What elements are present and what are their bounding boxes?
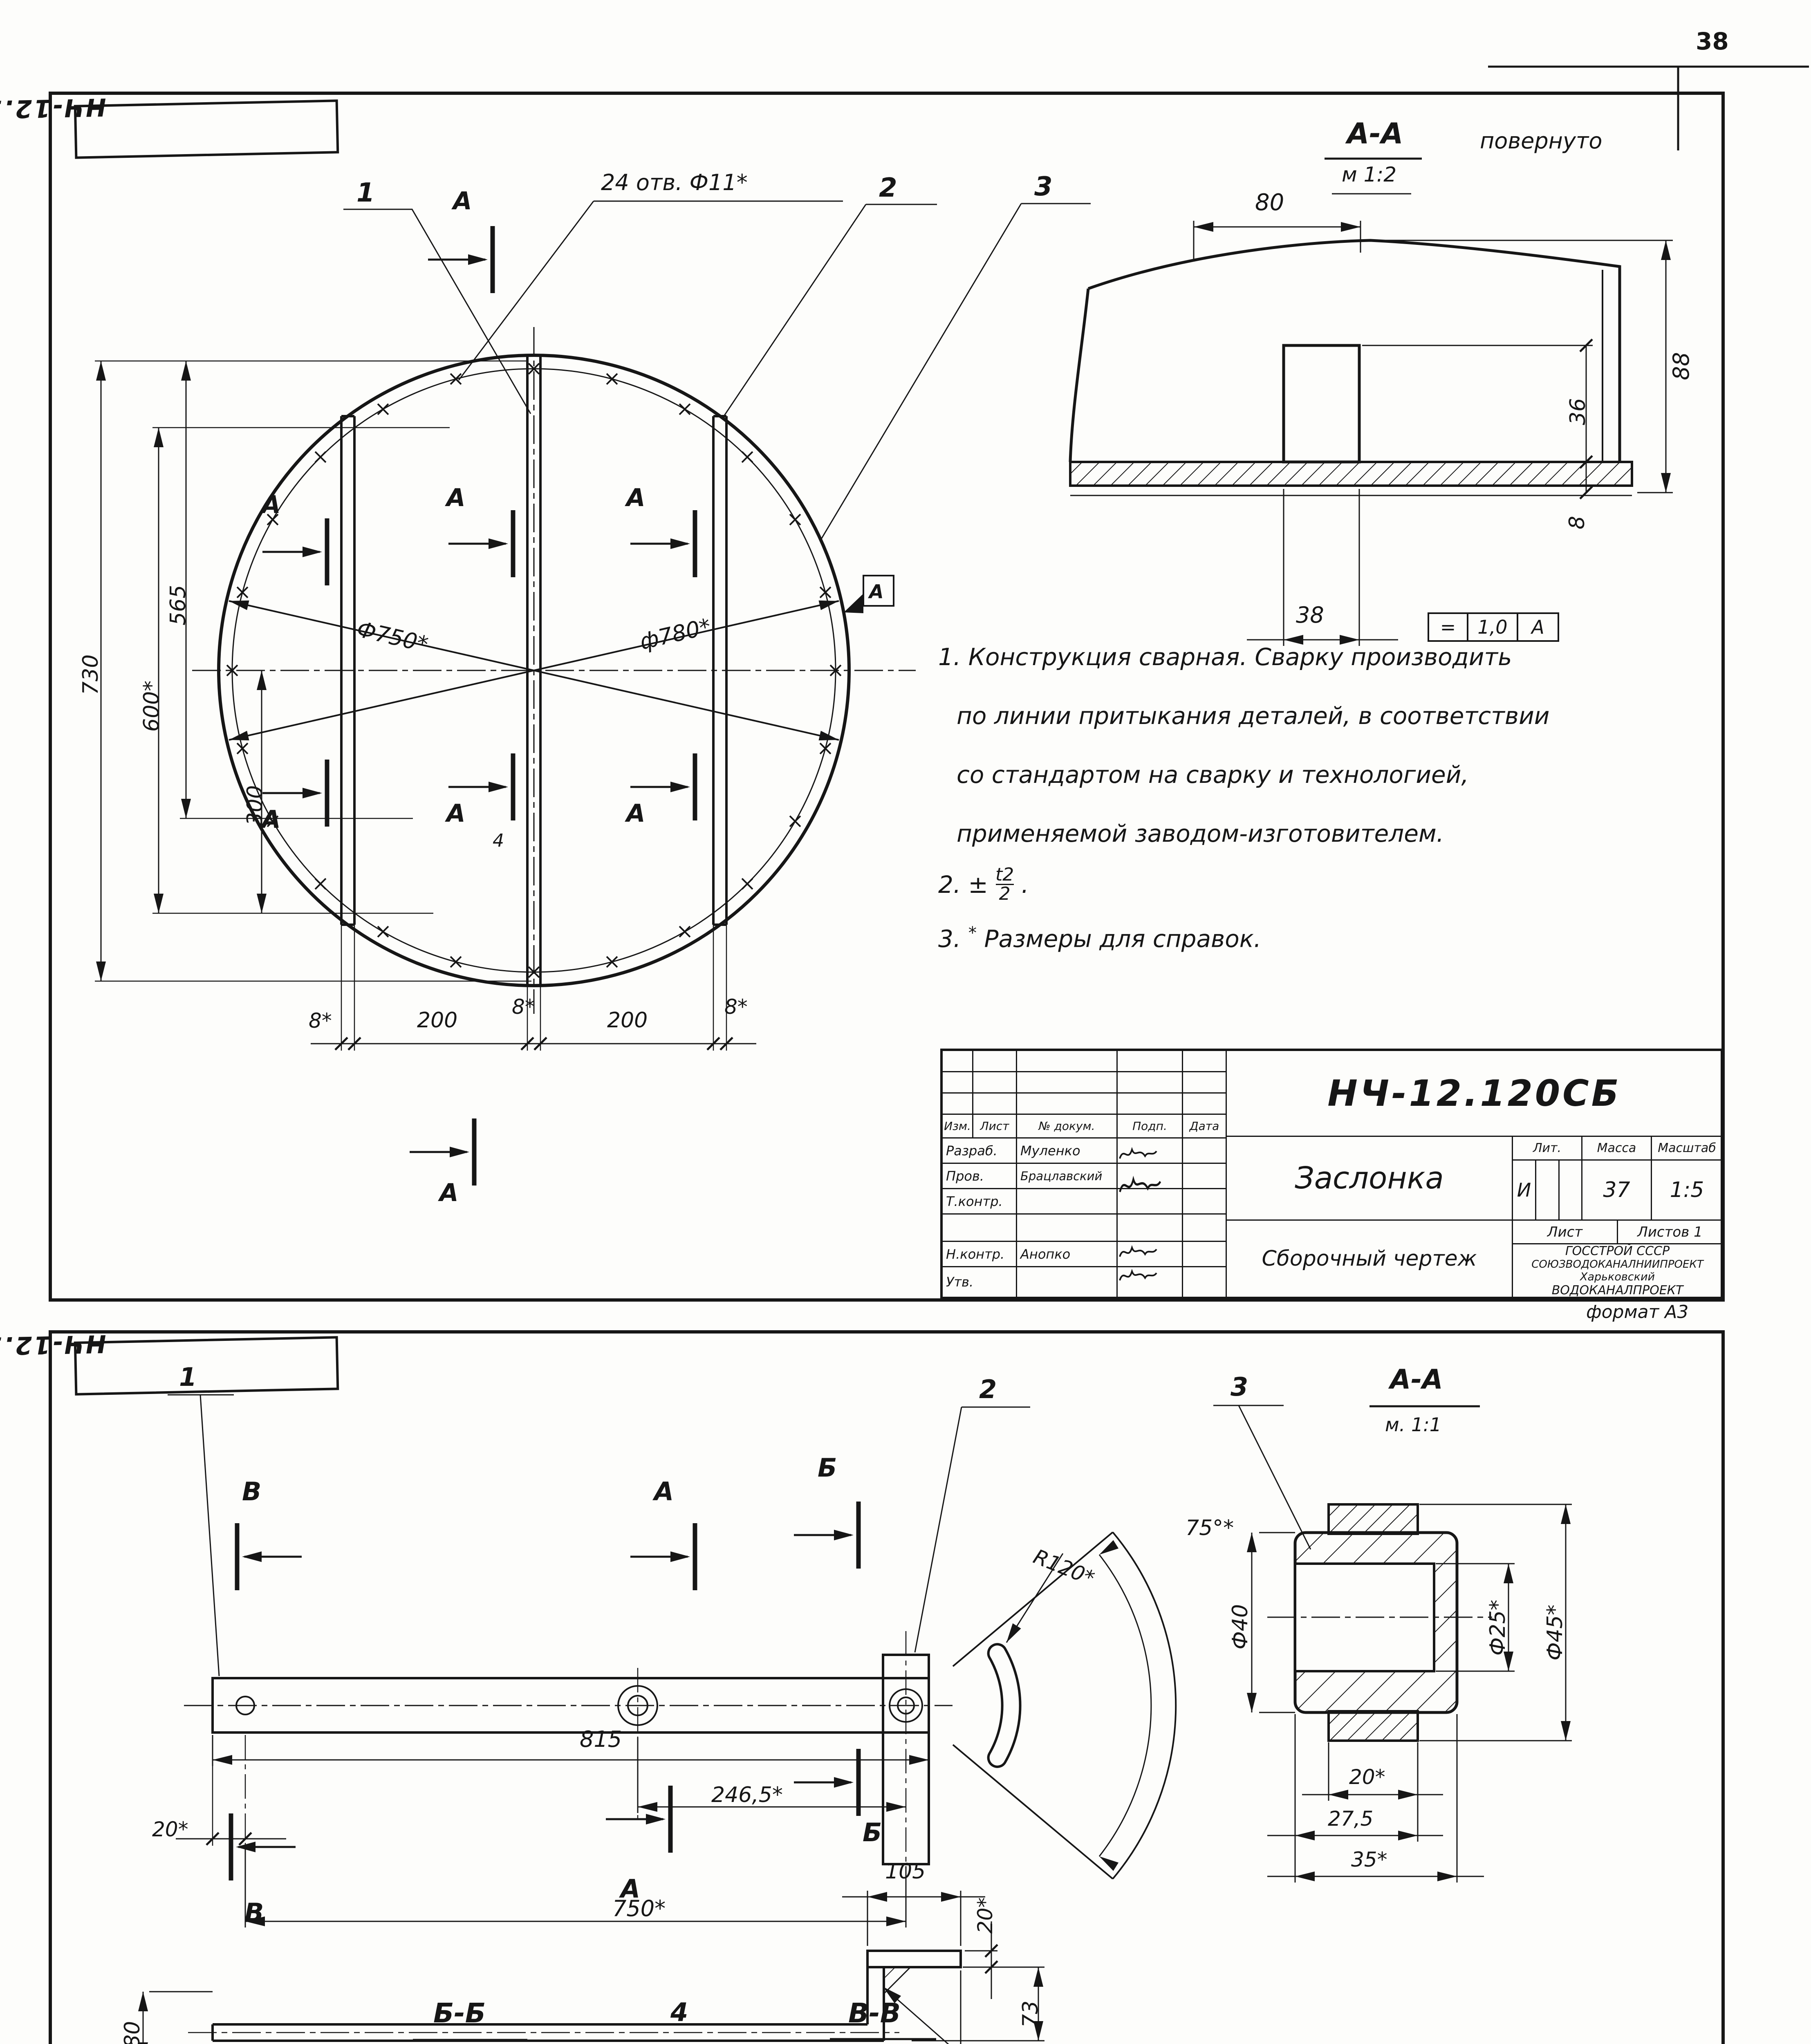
section-aa-scale: м. 1:1 [1385,1415,1441,1434]
dim-750: 750* [612,1898,666,1920]
tb-cell [1017,1051,1118,1072]
dim-105: 105 [885,1861,926,1882]
dim-80-left: 80 [122,2021,143,2044]
sheet2-lever-side-view [138,1891,1367,2044]
callout-2: 2 [979,1377,997,1402]
dim-38: 38 [1296,604,1324,626]
tb-cell [1118,1215,1183,1242]
tb-cell [973,1094,1017,1115]
fraction-numerator: t2 [995,866,1014,884]
tolerance-symbol: = [1429,614,1468,640]
tb-cell [1560,1161,1582,1221]
note-3-text: Размеры для справок. [984,925,1262,953]
tb-part-name: Заслонка [1227,1137,1513,1221]
sheet2-lever-top-view [168,1395,1311,1927]
note-3: 3. * Размеры для справок. [938,925,1261,950]
sheet1-title-block: Изм. Лист № докум. Подп. Дата Разраб. Му… [940,1049,1723,1300]
callout-2: 2 [879,175,897,201]
section-aa-title: А-А [1390,1366,1443,1393]
tb-cell [943,1094,973,1115]
dim-36: 36 [1567,398,1589,425]
note-1-line3: со стандартом на сварку и технологией, [957,763,1469,787]
dim-815: 815 [580,1728,622,1750]
tb-tkontr-label: Т.контр. [943,1189,1017,1215]
tb-cell [1183,1215,1227,1242]
dim-73: 73 [1020,2001,1041,2028]
tb-cell [1017,1094,1118,1115]
tb-cell [1183,1094,1227,1115]
note-2: 2. ± t2 2 . [938,866,1029,903]
sheet2-stamp-box: НЧ-12.130СБ [74,1336,339,1396]
dim-80: 80 [1255,191,1284,214]
tb-prov-name: Брацлавский [1017,1164,1118,1189]
tb-cell [1118,1072,1183,1094]
tb-header-podp: Подп. [1118,1115,1183,1139]
dim-730: 730 [80,654,101,695]
ref-star: * [968,923,977,943]
dim-300: 300 [244,785,266,826]
tb-razrab-label: Разраб. [943,1139,1017,1164]
tb-cell [1017,1267,1118,1298]
drawing-page: 38 24401-09 39 формат А3 формат А3 НЧ-12… [0,0,1811,2044]
tb-cell [1183,1242,1227,1267]
org-line: Харьковский [1580,1271,1655,1283]
section-letter-v: В [242,1479,261,1504]
tb-prov-sign [1118,1164,1183,1189]
dim-88: 88 [1670,352,1692,380]
tb-doc-number: НЧ-12.120СБ [1227,1051,1723,1137]
note-2-fraction: t2 2 [995,866,1014,903]
tb-cell [1536,1161,1560,1221]
note-1-line4: применяемой заводом-изготовителем. [957,822,1444,845]
tb-utv-sign [1118,1267,1183,1298]
sheet1-disc-view [95,201,1091,1186]
section-letter-a: А [446,801,465,826]
dim-20-section: 20* [1349,1767,1385,1787]
tb-sheets-label: Листов 1 [1618,1221,1723,1244]
tb-mass-value: 37 [1582,1161,1652,1221]
tb-header-izm: Изм. [943,1115,973,1139]
page-number: 38 [1696,29,1729,53]
tb-cell [1118,1051,1183,1072]
section-aa-title: А-А [1347,119,1403,148]
drawing-lineart [0,0,1811,2044]
tolerance-value: 1,0 [1468,614,1518,640]
tb-cell [973,1072,1017,1094]
tb-cell [943,1072,973,1094]
note-1-line1: 1. Конструкция сварная. Сварку производи… [938,645,1512,669]
tb-utv-label: Утв. [943,1267,1017,1298]
tolerance-frame: = 1,0 А [1428,612,1559,642]
tb-cell [1017,1189,1118,1215]
section-letter-a: А [453,189,472,213]
note-2-number: 2. [938,873,961,896]
tb-scale-value: 1:5 [1652,1161,1723,1221]
sheet1-stamp-box: НЧ-12.120СБ [74,99,339,159]
tb-sheet-label: Лист [1513,1221,1618,1244]
section-bb-title: Б-Б [433,2000,486,2027]
callout-3: 3 [1230,1374,1248,1400]
dim-246-5: 246,5* [711,1784,783,1806]
section-vv-title: В-В [848,2000,901,2027]
tb-cell [1118,1189,1183,1215]
section-letter-a: А [446,486,465,510]
tb-cell [1017,1215,1118,1242]
plus-minus: ± [968,873,988,896]
tb-cell [943,1051,973,1072]
section-letter-a: А [626,486,645,510]
sheet1-stamp: НЧ-12.120СБ [0,94,106,123]
section-letter-a: А [654,1479,674,1504]
dim-20-plate: 20* [975,1897,995,1934]
sheet2-section-aa [1247,1406,1572,1883]
section-letter-a: А [439,1181,458,1205]
tb-cell [943,1215,1017,1242]
org-line: ГОССТРОЙ СССР [1565,1244,1670,1258]
dim-8: 8* [309,1011,332,1031]
dim-27-5: 27,5 [1328,1809,1373,1829]
tb-cell [1183,1139,1227,1164]
tb-nkontr-name: Анопко [1017,1242,1118,1267]
holes-note: 24 отв. Ф11* [601,172,748,194]
org-line: СОЮЗВОДОКАНАЛНИИПРОЕКТ [1531,1258,1703,1271]
section-letter-a: А [626,801,645,826]
dim-8: 8* [512,997,535,1017]
tb-header-ndok: № докум. [1017,1115,1118,1139]
dim-565: 565 [168,585,189,625]
org-line: ВОДОКАНАЛПРОЕКТ [1552,1283,1683,1298]
tb-cell [973,1051,1017,1072]
callout-3: 3 [1034,174,1053,200]
dim-f40: Ф40 [1230,1604,1251,1650]
callout-1: 1 [179,1365,197,1390]
dim-600: 600* [141,681,162,732]
section-letter-b: Б [863,1820,882,1845]
sheet2-frame [50,1332,1723,2044]
dim-4: 4 [493,832,504,850]
section-letter-v: В [244,1900,264,1925]
tolerance-datum: А [1518,614,1558,640]
dim-f45: Ф45* [1544,1605,1566,1661]
section-aa-scale: м 1:2 [1342,164,1396,185]
tb-cell [1183,1267,1227,1298]
tb-razrab-name: Муленко [1017,1139,1118,1164]
tb-cell [1118,1094,1183,1115]
sheet2-stamp: НЧ-12.130СБ [0,1331,106,1360]
tb-scale-label: Масштаб [1652,1137,1723,1161]
callout-4: 4 [670,2000,688,2025]
tb-razrab-sign [1118,1139,1183,1164]
tb-lit-label: Лит. [1513,1137,1582,1161]
dim-75deg: 75°* [1186,1517,1234,1539]
section-letter-b: Б [818,1455,837,1481]
tb-header-data: Дата [1183,1115,1227,1139]
fraction-denominator: 2 [996,884,1014,903]
tb-cell [1017,1072,1118,1094]
tb-nkontr-sign [1118,1242,1183,1267]
dim-20: 20* [152,1819,188,1840]
dim-8: 8* [724,997,748,1017]
tb-header-list: Лист [973,1115,1017,1139]
note-3-number: 3. [938,925,961,953]
dim-200: 200 [607,1010,648,1031]
section-aa-rotated: повернуто [1480,130,1602,152]
sheet1-format: формат А3 [1586,1303,1688,1321]
section-letter-a: А [262,493,280,517]
note-1-line2: по линии притыкания деталей, в соответст… [957,704,1549,728]
datum-letter: А [869,582,884,601]
tb-cell [1183,1072,1227,1094]
callout-1: 1 [356,180,375,206]
dim-8-plate: 8 [1567,516,1588,529]
tb-nkontr-label: Н.контр. [943,1242,1017,1267]
tb-cell [1183,1189,1227,1215]
tb-organization: ГОССТРОЙ СССР СОЮЗВОДОКАНАЛНИИПРОЕКТ Хар… [1513,1244,1723,1298]
tb-prov-label: Пров. [943,1164,1017,1189]
tb-cell [1183,1051,1227,1072]
tb-lit-value: И [1513,1161,1536,1221]
tb-mass-label: Масса [1582,1137,1652,1161]
dim-f25: Ф25* [1487,1600,1508,1656]
tb-cell [1183,1164,1227,1189]
dim-35: 35* [1351,1849,1387,1870]
dim-200: 200 [417,1010,457,1031]
note-2-dot: . [1021,873,1029,896]
tb-doc-type: Сборочный чертеж [1227,1221,1513,1298]
